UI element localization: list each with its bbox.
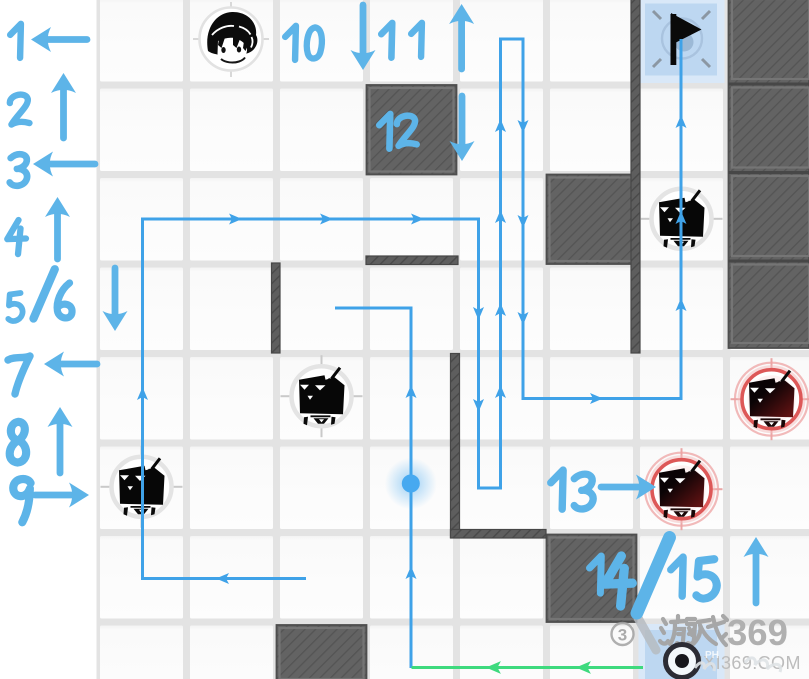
svg-text:PH: PH: [705, 650, 719, 661]
svg-text:369: 369: [727, 612, 788, 653]
svg-text:3: 3: [618, 626, 627, 645]
